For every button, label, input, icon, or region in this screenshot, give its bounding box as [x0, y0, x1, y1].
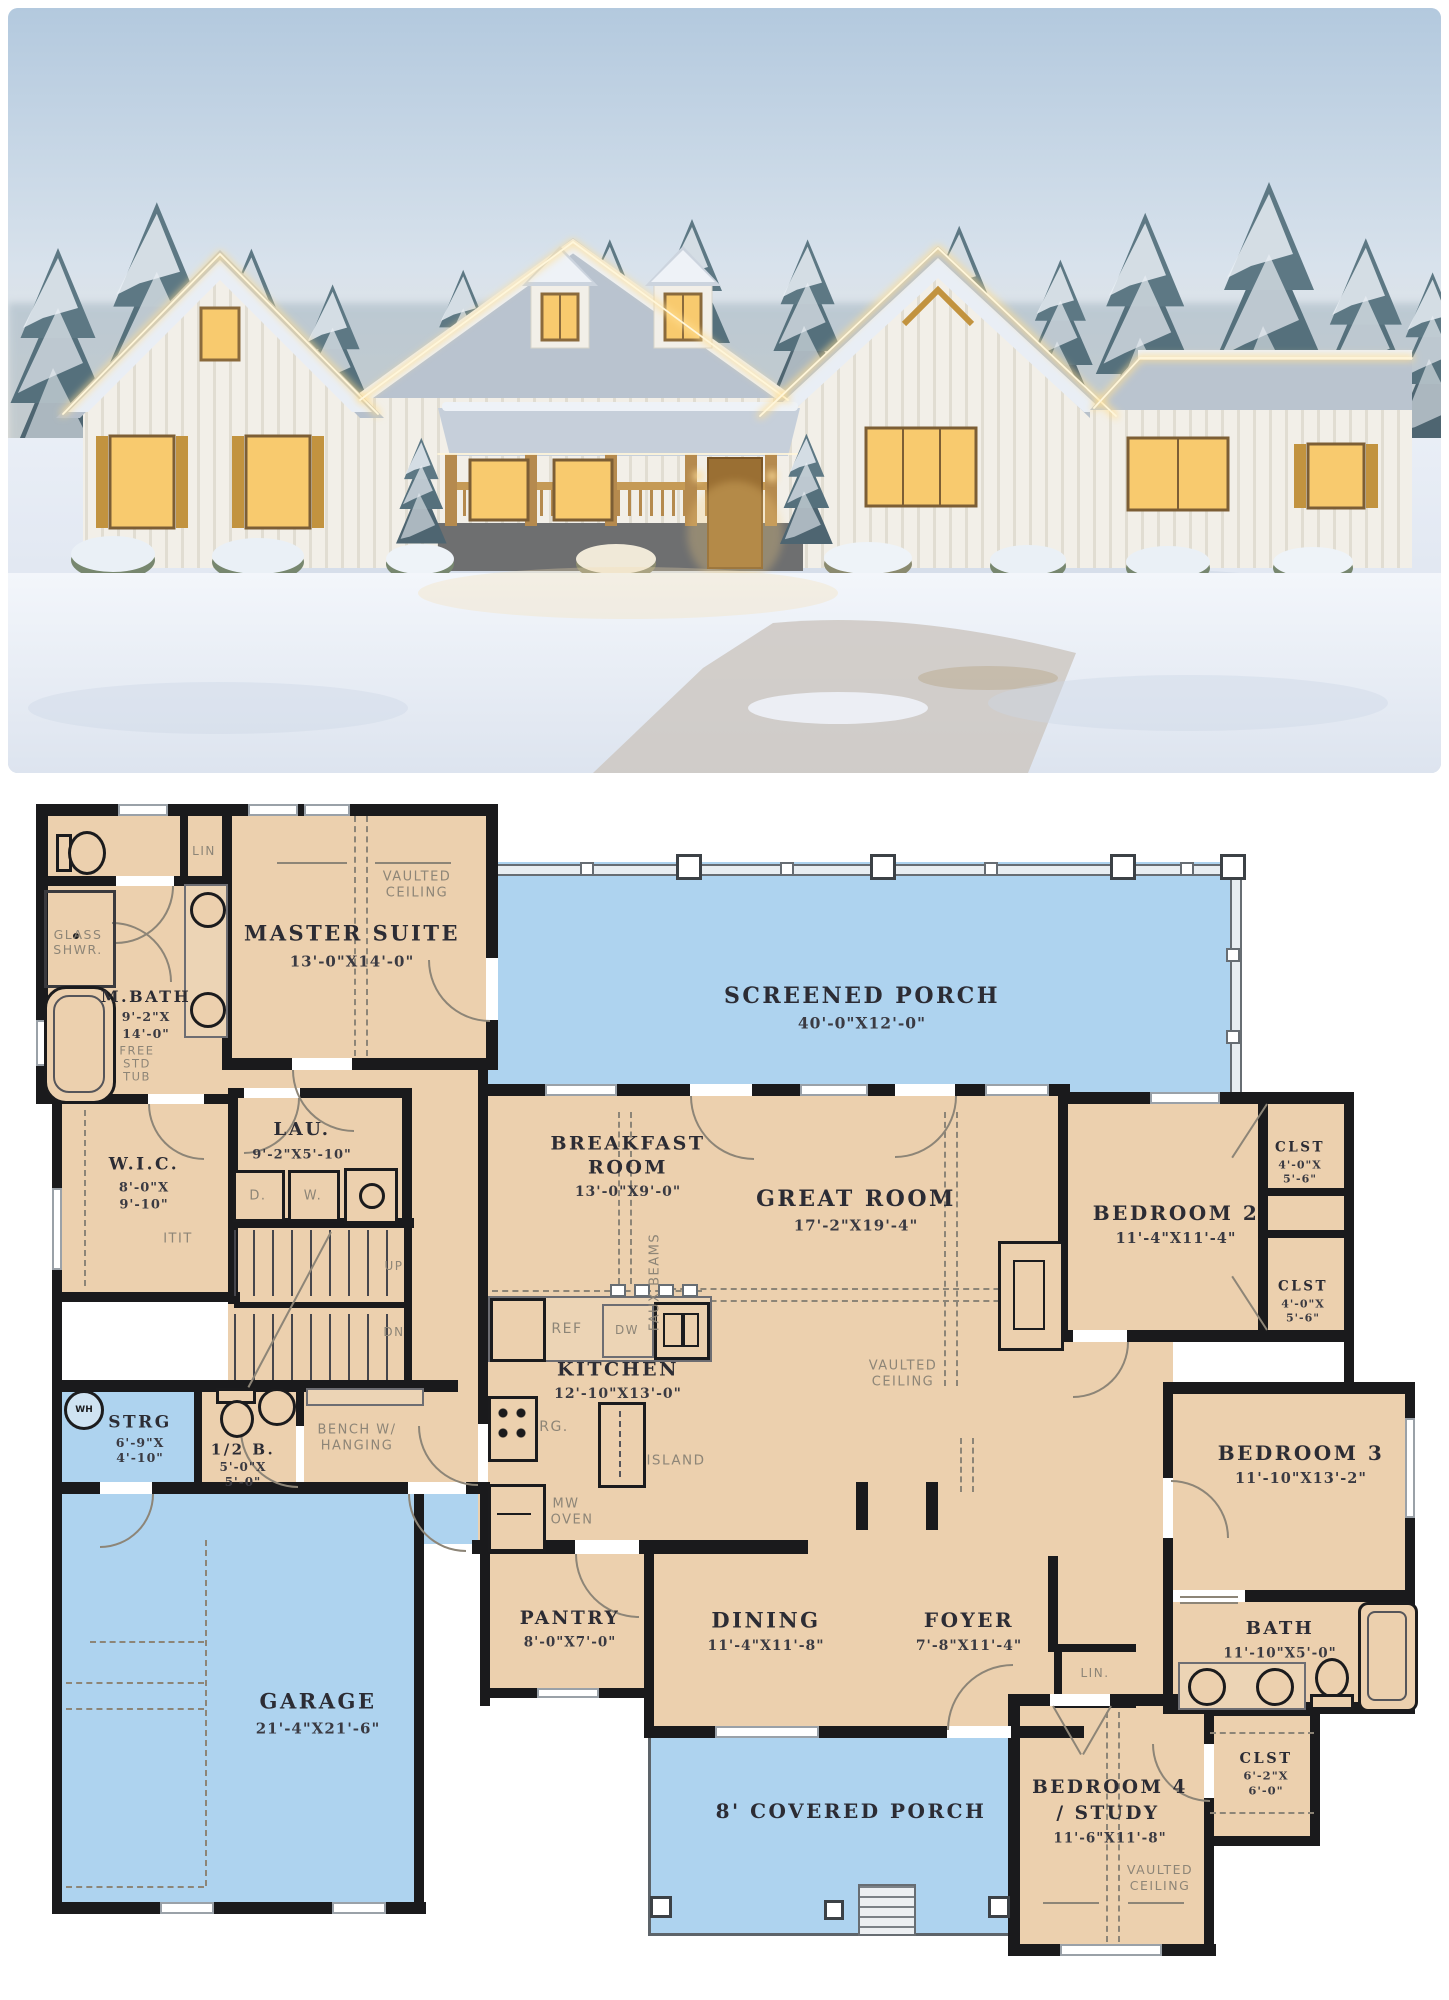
label-d1: 6'-9"X	[116, 1437, 165, 1450]
label-lin2: LIN.	[1080, 1667, 1109, 1679]
label-tub2: STD	[123, 1058, 151, 1070]
toilet-icon	[56, 828, 106, 874]
window	[160, 1902, 214, 1914]
porch-steps	[858, 1884, 916, 1936]
porch-post	[1110, 854, 1136, 880]
ceiling-dash-line	[1118, 1712, 1120, 1942]
window	[985, 1084, 1049, 1096]
label-lin: LIN	[192, 845, 216, 857]
label-rg: RG.	[539, 1420, 569, 1434]
wall-segment	[1310, 1706, 1320, 1846]
label-vaulted1: VAULTED	[383, 871, 452, 884]
ceiling-dash-line	[972, 1438, 974, 1492]
porch-post	[824, 1900, 844, 1920]
label-d: D.	[249, 1190, 266, 1203]
label-name: PANTRY	[520, 1610, 621, 1629]
label-d2: 5'-6"	[1283, 1174, 1317, 1185]
ceiling-dash-line	[66, 1886, 204, 1888]
label-d1: 8'-0"X	[119, 1182, 169, 1195]
label-dims: 7'-8"X11'-4"	[916, 1639, 1022, 1653]
toilet-icon	[212, 1388, 256, 1436]
water-heater-icon: WH	[64, 1390, 104, 1430]
ceiling-dash-line	[660, 1288, 1050, 1290]
plan-line	[1180, 1602, 1238, 1604]
label-name: BEDROOM 3	[1218, 1443, 1384, 1463]
toilet-icon	[1308, 1656, 1350, 1706]
label-name: GARAGE	[260, 1691, 377, 1712]
door-opening	[244, 1088, 300, 1098]
porch-post	[1220, 854, 1246, 880]
window	[332, 1902, 386, 1914]
label-up: UP	[384, 1260, 403, 1272]
plan-line	[1180, 1596, 1238, 1598]
label-tub3: TUB	[123, 1071, 151, 1083]
label-rods: ITIT	[163, 1233, 193, 1246]
label-ref: REF	[551, 1322, 582, 1336]
porch-floor	[486, 862, 1238, 1092]
door-opening	[408, 1482, 466, 1494]
porch-screen	[1230, 864, 1242, 1092]
bar-stool	[610, 1284, 626, 1297]
label-name: FOYER	[924, 1610, 1014, 1630]
ceiling-dash-line	[960, 1438, 962, 1492]
window	[304, 804, 350, 816]
sink-icon	[1256, 1668, 1294, 1706]
window	[537, 1688, 599, 1698]
laundry-sink-icon	[344, 1168, 398, 1224]
door-opening	[575, 1540, 639, 1554]
label-glass2: SHWR.	[53, 944, 102, 957]
wall-segment	[644, 1726, 1084, 1738]
door-opening	[478, 1424, 488, 1482]
wall-segment	[222, 1058, 498, 1070]
island-icon	[598, 1402, 646, 1488]
wall-segment	[1258, 1230, 1348, 1238]
wall-segment	[1048, 1556, 1058, 1652]
label-d1: 5'-0"X	[220, 1461, 267, 1473]
door-opening	[100, 1482, 152, 1494]
label-dims: 8'-0"X7'-0"	[524, 1636, 617, 1650]
door-opening	[148, 1094, 204, 1104]
label-dims: 21'-4"X21'-6"	[256, 1722, 381, 1737]
label-dn: DN	[383, 1326, 404, 1338]
room-floor	[796, 1386, 1068, 1490]
wall-segment	[486, 804, 498, 1070]
label-vaulted1: VAULTED	[869, 1360, 938, 1373]
label-d2: 9'-10"	[119, 1199, 168, 1212]
bathtub-icon	[1358, 1602, 1418, 1712]
wall-segment	[52, 1292, 240, 1302]
label-d1: 4'-0"X	[1278, 1160, 1322, 1171]
label-name: BATH	[1246, 1620, 1315, 1638]
ceiling-dash-line	[90, 1641, 204, 1643]
window	[248, 804, 298, 816]
label-d2: 5'-0"	[225, 1476, 262, 1488]
wall-segment	[1054, 1644, 1136, 1652]
sink-icon	[1188, 1668, 1226, 1706]
window	[1405, 1418, 1415, 1518]
door-opening	[895, 1084, 955, 1096]
wall-segment	[414, 1494, 424, 1914]
ceiling-dash-line	[1210, 1732, 1314, 1734]
stair-treads	[234, 1230, 404, 1296]
label-name: CLST	[1240, 1752, 1293, 1767]
label-n2: ROOM	[588, 1159, 668, 1178]
label-d2: 4'-10"	[116, 1452, 164, 1465]
ceiling-dash-line	[1210, 1812, 1314, 1814]
plan-line	[1043, 1902, 1099, 1904]
wall-segment	[194, 1386, 202, 1494]
window	[715, 1726, 819, 1738]
wall-segment	[1258, 1102, 1268, 1338]
label-glass1: GLASS	[54, 929, 103, 942]
wall-segment	[926, 1482, 938, 1530]
label-dims: 11'-4"X11'-4"	[1116, 1232, 1237, 1247]
label-vaulted1: VAULTED	[1127, 1864, 1193, 1877]
water-heater-label: WH	[67, 1393, 101, 1427]
label-name: CLST	[1278, 1280, 1328, 1294]
label-name: KITCHEN	[557, 1361, 679, 1380]
label-name: GREAT ROOM	[756, 1188, 956, 1210]
label-dims: 17'-2"X19'-4"	[794, 1219, 919, 1234]
wall-segment	[856, 1482, 868, 1530]
label-name: MASTER SUITE	[244, 923, 460, 944]
sink-icon	[190, 992, 226, 1028]
porch-post	[676, 854, 702, 880]
label-dw: DW	[615, 1324, 639, 1336]
plan-line	[277, 862, 347, 864]
sink-icon	[258, 1388, 296, 1426]
label-tub1: FREE	[119, 1045, 154, 1057]
mudroom-bench	[306, 1388, 424, 1406]
door-opening	[292, 1058, 352, 1070]
wall-segment	[402, 1088, 412, 1228]
label-dims: 11'-10"X5'-0"	[1223, 1647, 1336, 1661]
label-d2: 14'-0"	[122, 1028, 170, 1041]
label-name: 1/2 B.	[211, 1443, 275, 1458]
porch-post	[870, 854, 896, 880]
label-d2: 5'-6"	[1286, 1313, 1320, 1324]
label-dims: 40'-0"X12'-0"	[798, 1015, 926, 1031]
wall-segment	[234, 1302, 406, 1308]
page: WH	[0, 0, 1449, 2000]
label-d1: 4'-0"X	[1281, 1299, 1325, 1310]
screen-tick	[1226, 1030, 1240, 1044]
label-n2: / STUDY	[1056, 1805, 1159, 1824]
door-opening	[690, 1084, 752, 1096]
porch-post	[650, 1896, 672, 1918]
label-bench1: BENCH W/	[317, 1424, 396, 1437]
label-name: LAU.	[274, 1121, 331, 1139]
screen-tick	[984, 862, 998, 876]
ceiling-dash-line	[1106, 1712, 1108, 1942]
door-opening	[1050, 1694, 1110, 1706]
label-dims: 11'-10"X13'-2"	[1235, 1472, 1367, 1487]
window	[1150, 1092, 1220, 1104]
wall-segment	[1258, 1188, 1348, 1196]
label-n1: BEDROOM 4	[1032, 1779, 1188, 1798]
label-d2: 6'-0"	[1248, 1785, 1283, 1797]
label-dims: 13'-0"X9'-0"	[575, 1185, 681, 1199]
label-faux: FAUX BEAMS	[649, 1233, 662, 1331]
door-opening	[1073, 1330, 1127, 1342]
screen-tick	[1180, 862, 1194, 876]
plan-line	[375, 862, 451, 864]
bar-stool	[682, 1284, 698, 1297]
label-dims: 13'-0"X14'-0"	[290, 955, 415, 970]
label-vaulted2: CEILING	[1130, 1880, 1191, 1893]
window	[545, 1084, 617, 1096]
wall-segment	[404, 1228, 412, 1392]
stair-treads	[234, 1314, 404, 1380]
label-name: DINING	[711, 1610, 820, 1631]
label-vaulted2: CEILING	[872, 1376, 935, 1389]
porch-post	[988, 1896, 1010, 1918]
label-d1: 9'-2"X	[122, 1011, 171, 1024]
screen-tick	[580, 862, 594, 876]
ceiling-dash-line	[84, 1110, 86, 1286]
wall-segment	[644, 1548, 654, 1738]
label-island: ISLAND	[646, 1454, 705, 1468]
label-vaulted2: CEILING	[386, 887, 449, 900]
label-bench2: HANGING	[321, 1440, 394, 1453]
label-name: CLST	[1275, 1141, 1325, 1155]
window	[118, 804, 168, 816]
wall-segment	[1204, 1836, 1320, 1846]
label-name: BEDROOM 2	[1093, 1203, 1259, 1223]
label-dims: 11'-6"X11'-8"	[1053, 1832, 1166, 1846]
plan-line	[1128, 1902, 1184, 1904]
label-name: SCREENED PORCH	[724, 985, 1000, 1007]
label-dims: 9'-2"X5'-10"	[252, 1149, 352, 1162]
label-mw2: OVEN	[551, 1514, 594, 1527]
label-n1: BREAKFAST	[550, 1135, 705, 1154]
window	[800, 1084, 868, 1096]
wall-segment	[1344, 1092, 1354, 1392]
window	[52, 1188, 62, 1270]
refrigerator-icon	[490, 1298, 546, 1362]
wall-segment	[478, 1068, 488, 1482]
ceiling-dash-line	[956, 1112, 958, 1386]
ceiling-dash-line	[660, 1300, 1050, 1302]
wall-segment	[180, 804, 188, 884]
sink-icon	[190, 892, 226, 928]
label-name: M.BATH	[101, 989, 191, 1005]
door-opening	[116, 876, 174, 886]
screen-tick	[780, 862, 794, 876]
ceiling-dash-line	[205, 1540, 207, 1886]
label-w: W.	[304, 1190, 323, 1203]
wall-segment	[1163, 1382, 1415, 1394]
window	[1060, 1944, 1162, 1956]
ceiling-dash-line	[66, 1682, 204, 1684]
range-icon	[488, 1396, 538, 1462]
label-dims: 11'-4"X11'-8"	[707, 1639, 824, 1653]
wall-oven-icon	[488, 1484, 546, 1552]
screen-tick	[1226, 948, 1240, 962]
label-d1: 6'-2"X	[1243, 1770, 1288, 1782]
label-name: STRG	[108, 1415, 172, 1432]
floor-plan: WH	[0, 0, 1449, 2000]
label-name: W.I.C.	[109, 1157, 179, 1174]
ceiling-dash-line	[66, 1708, 204, 1710]
label-name: 8' COVERED PORCH	[716, 1801, 987, 1821]
fireplace-icon	[998, 1241, 1064, 1351]
ceiling-dash-line	[944, 1112, 946, 1386]
label-mw1: MW	[552, 1498, 579, 1511]
label-dims: 12'-10"X13'-0"	[554, 1387, 682, 1401]
